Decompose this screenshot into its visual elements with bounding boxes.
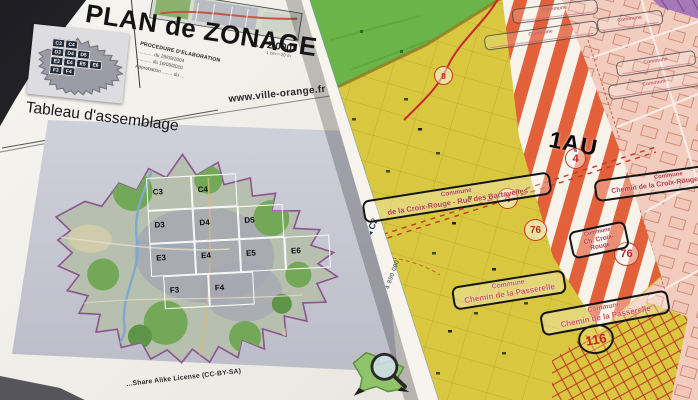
openstreetmap-logo-icon xyxy=(346,346,411,398)
assemblage-tile-f4: F4 xyxy=(208,272,255,307)
assemblage-tile-e3: E3 xyxy=(149,242,196,277)
assemblage-tile-d3: D3 xyxy=(148,209,195,244)
assemblage-tile-e4: E4 xyxy=(194,239,241,274)
parcel-marker-76: 76 xyxy=(524,219,547,241)
inset-tile-f4: F4 xyxy=(62,66,76,76)
assemblage-tile-d5: D5 xyxy=(238,204,285,239)
zoning-plan-photo: PLAN de ZONAGE 1 / 2 000 1 cm = 20 m PRO… xyxy=(0,0,698,400)
inset-assemblage-card: C3 C4 D3 D4 D5 E3 E4 E5 E6 F3 F4 xyxy=(27,24,130,104)
assemblage-tile-f3: F3 xyxy=(163,274,210,309)
assemblage-tile-e6: E6 xyxy=(284,234,331,269)
inset-tile-e6: E6 xyxy=(89,60,103,70)
assemblage-tile-e5: E5 xyxy=(239,237,286,272)
assemblage-tile-d4: D4 xyxy=(193,206,240,241)
inset-tile-f3: F3 xyxy=(49,65,63,75)
assemblage-tile-c4: C4 xyxy=(191,173,238,208)
assemblage-tile-c3: C3 xyxy=(146,176,193,211)
parcel-marker-8: 8 xyxy=(434,66,453,85)
inset-tile-e5: E5 xyxy=(76,59,90,69)
parcel-marker-4: 4 xyxy=(565,148,586,169)
